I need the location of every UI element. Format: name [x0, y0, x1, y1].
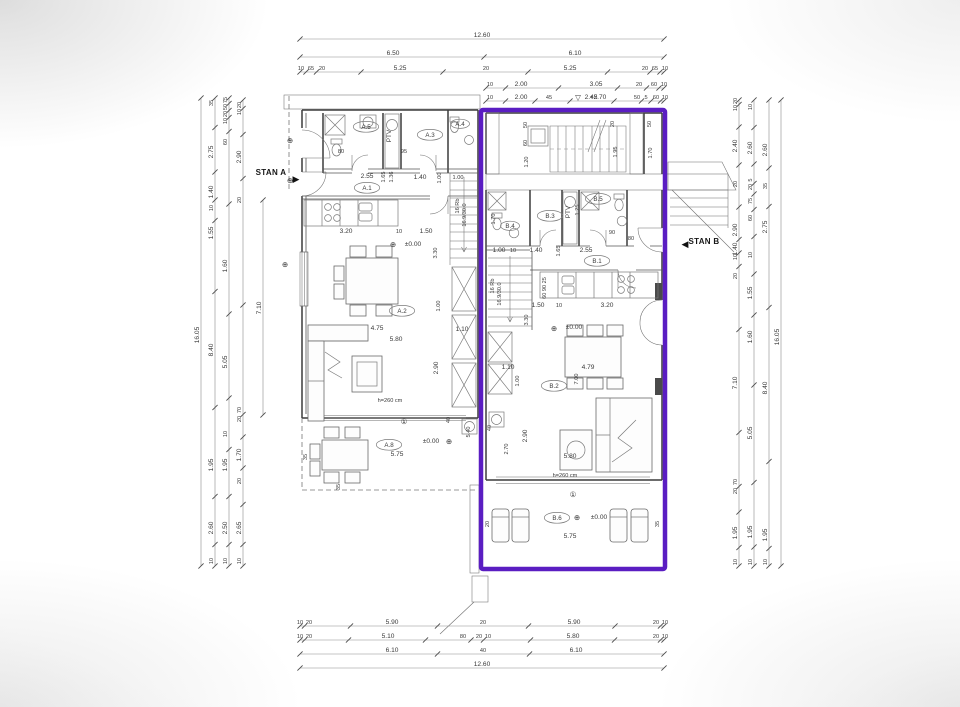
dim-label: 10: [209, 205, 215, 211]
dim-label: 2.00: [515, 94, 528, 101]
note-label: 1.40: [414, 174, 427, 181]
note-label: 10: [556, 303, 562, 309]
note-label: 35: [303, 454, 309, 460]
dim-label: 2.65: [236, 521, 243, 534]
dim-label: 65: [308, 66, 314, 72]
note-label: 2.70: [504, 444, 510, 455]
stan-b-unit: [486, 113, 662, 568]
dim-label: 1.60: [222, 259, 229, 272]
dim-label: 1.55: [747, 286, 754, 299]
dim-label: 10: [298, 66, 304, 72]
room-b3: B.3: [545, 213, 555, 220]
dim-label: 5: [748, 178, 754, 181]
dim-label: 20: [733, 273, 739, 279]
note-label: 7.00: [574, 374, 580, 385]
dim-label: 6.10: [569, 50, 582, 57]
dim-label: 10: [733, 105, 739, 111]
dim-label: 50: [634, 95, 640, 101]
dim-label: 20: [483, 66, 489, 72]
room-a2: A.2: [397, 308, 407, 315]
dim-label: 10: [487, 82, 493, 88]
note-label: 1.00: [515, 376, 521, 387]
dim-label: 5: [644, 95, 647, 101]
room-a5: A.5: [361, 124, 371, 131]
note-label: ①: [401, 417, 408, 426]
stan-a-unit: [300, 110, 478, 490]
dim-label: 10: [733, 254, 739, 260]
ground-line: [440, 602, 474, 634]
dim-label: 65: [652, 66, 658, 72]
dim-label: 2.40: [732, 139, 739, 152]
floor-plan-screenshot: 12.606.506.101065205.25205.25206510102.0…: [0, 0, 960, 707]
note-label: ⊕: [287, 136, 293, 145]
note-label: ±0.00: [591, 514, 608, 521]
dimension-layer: 12.606.506.101065205.25205.25206510102.0…: [194, 32, 784, 671]
level-marker-icon: ▽: [575, 93, 582, 102]
note-label: 2.55: [580, 247, 593, 254]
unit-a-entry-arrow: ▶: [293, 174, 300, 184]
dim-label: 7.10: [256, 301, 263, 314]
note-label: 1.20: [524, 157, 530, 168]
note-label: 20: [485, 521, 491, 527]
note-label: 60: [523, 140, 529, 146]
dim-label: 10: [748, 252, 754, 258]
note-label: 5.80: [564, 453, 577, 460]
note-label: 4.75: [371, 325, 384, 332]
dim-label: 1.40: [732, 242, 739, 255]
note-label: 10: [396, 229, 402, 235]
note-label: 40: [446, 417, 452, 423]
note-label: 1.00: [437, 173, 443, 184]
dim-label: 60: [223, 139, 229, 145]
note-label: 3.20: [601, 302, 614, 309]
unit-a-label: STAN A: [256, 168, 287, 177]
note-label: 1.00: [453, 175, 464, 181]
note-label: 2.90: [522, 429, 529, 442]
note-label: 16.9/30.0: [497, 282, 503, 305]
wall-hatch-band-b: [486, 174, 728, 190]
sofa-b: [560, 398, 652, 472]
dim-label: 75: [223, 97, 229, 103]
note-label: 1.10: [502, 364, 515, 371]
note-label: ①: [570, 490, 577, 499]
note-label: 1.10: [456, 326, 469, 333]
note-label: 5.75: [564, 533, 577, 540]
note-label: 2.90: [433, 361, 440, 374]
dim-label: 10: [662, 634, 668, 640]
note-label: ⊕: [574, 513, 580, 522]
note-label: 2.55: [361, 173, 374, 180]
dim-label: 2.75: [208, 145, 215, 158]
note-label: ⊕: [287, 176, 293, 185]
unit-b-label: STAN B: [689, 237, 720, 246]
bathroom-b5-fixtures: [581, 192, 627, 226]
dim-label: 10: [297, 634, 303, 640]
note-label: PTV: [386, 129, 393, 142]
door-arcs-a: [302, 130, 448, 214]
note-label: 35: [655, 521, 661, 527]
kitchen-a: [304, 200, 398, 226]
dim-label: 5.25: [394, 65, 407, 72]
note-label: 5.80: [390, 336, 403, 343]
dim-label: 35: [209, 100, 215, 106]
note-label: 50: [647, 121, 653, 127]
dim-label: 2.60: [208, 521, 215, 534]
dim-label: 20: [476, 634, 482, 640]
dim-label: 70: [733, 479, 739, 485]
note-label: 1.50: [420, 228, 433, 235]
dim-label: 2.90: [236, 150, 243, 163]
dim-label: 2.75: [762, 220, 769, 233]
room-b4: B.4: [505, 223, 515, 230]
dim-label: 10: [223, 558, 229, 564]
note-label: 80: [628, 236, 634, 242]
dim-label: 6.10: [570, 647, 583, 654]
note-label: 50: [523, 122, 529, 128]
dim-label: 2.00: [515, 81, 528, 88]
dim-label: 2.90: [732, 223, 739, 236]
dim-label: 12.60: [474, 661, 491, 668]
note-label: 1.70: [491, 214, 497, 225]
kitchen-b: [540, 272, 658, 298]
dim-label: 40: [480, 648, 486, 654]
dim-label: 20: [480, 620, 486, 626]
room-a1: A.1: [362, 185, 372, 192]
note-label: 1.25: [575, 205, 581, 216]
dim-label: 10: [662, 620, 668, 626]
wall-niche: [655, 378, 662, 395]
dim-label: 2.50: [222, 521, 229, 534]
note-label: 16 Rb: [455, 199, 461, 214]
insulation-strip-left-of-b: [470, 485, 479, 573]
dim-label: 10: [748, 559, 754, 565]
dim-label: 6.50: [387, 50, 400, 57]
note-label: 1.36: [389, 172, 395, 183]
dim-label: 20: [306, 620, 312, 626]
dim-label: 1.55: [208, 226, 215, 239]
dim-label: 10: [223, 431, 229, 437]
dim-label: 1.40: [208, 185, 215, 198]
note-label: 80: [338, 149, 344, 155]
dim-label: 2.60: [762, 143, 769, 156]
dim-label: 12.60: [474, 32, 491, 39]
note-label: 3.20: [340, 228, 353, 235]
dim-label: 5.25: [564, 65, 577, 72]
note-label: ±0.00: [566, 324, 583, 331]
dim-label: 20: [306, 634, 312, 640]
dim-label: 10: [733, 559, 739, 565]
note-label: 16 Rb: [490, 279, 496, 294]
dim-label: 20: [636, 82, 642, 88]
dim-label: 16.05: [194, 326, 201, 343]
dim-label: 2.60: [747, 141, 754, 154]
dim-label: 20: [748, 184, 754, 190]
dim-label: 5.10: [382, 633, 395, 640]
window-a-left: [300, 252, 308, 306]
dim-label: 10: [209, 558, 215, 564]
dim-label: 60: [748, 215, 754, 221]
ground-hatch-tail: [472, 576, 488, 602]
dim-label: 20: [733, 488, 739, 494]
dim-label: 10: [237, 109, 243, 115]
room-b2: B.2: [549, 383, 559, 390]
unit-b-entry-arrow: ◀: [682, 239, 689, 249]
dining-set-a: [334, 246, 398, 316]
roof-hatch-band-a: [284, 95, 480, 109]
dim-label: 1.95: [222, 458, 229, 471]
dim-label: 60: [653, 95, 659, 101]
dim-label: 80: [460, 634, 466, 640]
note-label: 3.30: [433, 248, 439, 259]
dim-label: 60: [651, 82, 657, 88]
dim-label: 20: [223, 111, 229, 117]
note-label: 35: [336, 484, 342, 490]
note-label: 1.40: [530, 247, 543, 254]
dim-label: 8.40: [762, 381, 769, 394]
dim-label: 20: [237, 416, 243, 422]
note-label: h=260 cm: [378, 398, 403, 404]
note-label: ⊕: [551, 324, 557, 333]
dim-label: 7.10: [732, 376, 739, 389]
note-label: 16.9/30.0: [462, 203, 468, 226]
dim-label: 10: [223, 118, 229, 124]
dim-label: 1.95: [762, 528, 769, 541]
note-label: 1.00: [436, 301, 442, 312]
dim-label: 5.05: [747, 426, 754, 439]
dim-label: 1.95: [208, 458, 215, 471]
note-label: 3.30: [524, 315, 530, 326]
dim-label: 75: [748, 198, 754, 204]
dim-label: 20: [237, 478, 243, 484]
dim-label: 20: [237, 197, 243, 203]
note-label: 95: [401, 149, 407, 155]
dim-label: 10: [297, 620, 303, 626]
note-label: ±0.00: [423, 438, 440, 445]
dim-label: 10: [763, 559, 769, 565]
dim-label: 5.90: [386, 619, 399, 626]
dim-label: 20: [642, 66, 648, 72]
dim-label: 20: [733, 98, 739, 104]
level-270: +2.70: [590, 94, 607, 101]
room-b1: B.1: [592, 258, 602, 265]
dim-label: 1.95: [732, 526, 739, 539]
floor-plan-svg: 12.606.506.101065205.25205.25206510102.0…: [0, 0, 960, 707]
dim-label: 1.95: [747, 525, 754, 538]
dim-label: 5.90: [568, 619, 581, 626]
terrace-b-upper: [486, 113, 662, 174]
dim-label: 10: [662, 95, 668, 101]
note-label: 20: [610, 121, 616, 127]
dim-label: 10: [487, 95, 493, 101]
dim-label: 16.05: [774, 328, 781, 345]
note-label: 1.95: [613, 147, 619, 158]
note-label: h=260 cm: [553, 473, 578, 479]
dim-label: 20: [653, 620, 659, 626]
dim-label: 35: [763, 183, 769, 189]
note-label: 60 90 25: [542, 277, 548, 299]
note-label: 40: [487, 425, 493, 431]
sofa-a: [308, 325, 382, 421]
note-label: 5.75: [391, 451, 404, 458]
note-label: PTV: [565, 205, 572, 218]
dim-label: 5.05: [222, 355, 229, 368]
room-a4: A.4: [455, 121, 465, 128]
note-label: ⊕: [390, 240, 396, 249]
dim-label: 70: [237, 407, 243, 413]
dim-label: 20: [653, 634, 659, 640]
note-label: ⊕: [446, 437, 452, 446]
note-label: 1.65: [556, 246, 562, 257]
dim-label: 1.60: [747, 330, 754, 343]
dim-label: 10: [485, 634, 491, 640]
note-label: 1.70: [648, 148, 654, 159]
dim-label: 3.05: [590, 81, 603, 88]
dim-label: 20: [237, 102, 243, 108]
note-label: 1.00: [493, 247, 506, 254]
dim-label: 8.40: [208, 343, 215, 356]
dim-label: 10: [661, 82, 667, 88]
note-label: 1.50: [532, 302, 545, 309]
dim-label: 45: [546, 95, 552, 101]
room-a8: A.8: [384, 442, 394, 449]
room-b5: B.5: [593, 196, 603, 203]
dim-label: 10: [748, 104, 754, 110]
note-label: 10: [510, 248, 516, 254]
note-label: 1.65: [381, 172, 387, 183]
wall-niche: [655, 283, 662, 300]
note-label: 4.79: [582, 364, 595, 371]
dim-label: 5.80: [567, 633, 580, 640]
dim-label: 1.70: [236, 448, 243, 461]
note-label: ±0.00: [405, 241, 422, 248]
note-label: 90: [609, 230, 615, 236]
dim-label: 6.10: [386, 647, 399, 654]
room-a3: A.3: [425, 132, 435, 139]
note-label: 5.40: [466, 427, 472, 438]
dim-label: 20: [319, 66, 325, 72]
dim-label: 50: [223, 104, 229, 110]
dim-label: 10: [237, 558, 243, 564]
dim-label: 20: [733, 181, 739, 187]
dim-label: 10: [662, 66, 668, 72]
note-label: ⊕: [282, 260, 288, 269]
room-b6: B.6: [552, 515, 562, 522]
